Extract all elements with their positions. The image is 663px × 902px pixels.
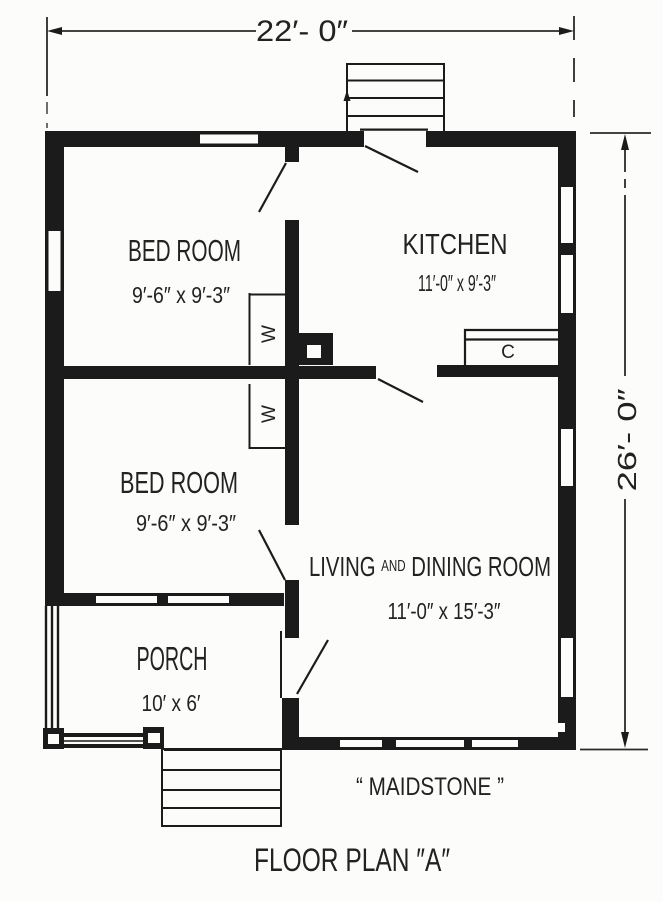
svg-text:11′-0″ x 9′-3″: 11′-0″ x 9′-3″ bbox=[418, 270, 496, 296]
svg-text:W: W bbox=[259, 405, 280, 423]
svg-text:W: W bbox=[259, 325, 280, 343]
svg-text:“ MAIDSTONE ”: “ MAIDSTONE ” bbox=[356, 773, 504, 801]
svg-text:10′ x 6′: 10′ x 6′ bbox=[142, 690, 201, 716]
svg-text:26′- 0″: 26′- 0″ bbox=[612, 389, 642, 492]
svg-text:C: C bbox=[501, 342, 515, 363]
svg-text:BED ROOM: BED ROOM bbox=[120, 465, 238, 500]
svg-text:11′-0″ x 15′-3″: 11′-0″ x 15′-3″ bbox=[388, 598, 501, 624]
svg-text:KITCHEN: KITCHEN bbox=[403, 229, 508, 261]
svg-text:22′- 0″: 22′- 0″ bbox=[256, 15, 348, 48]
svg-text:9′-6″ x 9′-3″: 9′-6″ x 9′-3″ bbox=[132, 282, 230, 308]
svg-text:PORCH: PORCH bbox=[137, 640, 208, 677]
svg-text:9′-6″ x 9′-3″: 9′-6″ x 9′-3″ bbox=[136, 510, 236, 536]
svg-text:BED ROOM: BED ROOM bbox=[128, 233, 241, 268]
svg-text:LIVING AND DINING ROOM: LIVING AND DINING ROOM bbox=[309, 551, 551, 582]
svg-text:FLOOR PLAN ″A″: FLOOR PLAN ″A″ bbox=[254, 842, 450, 878]
